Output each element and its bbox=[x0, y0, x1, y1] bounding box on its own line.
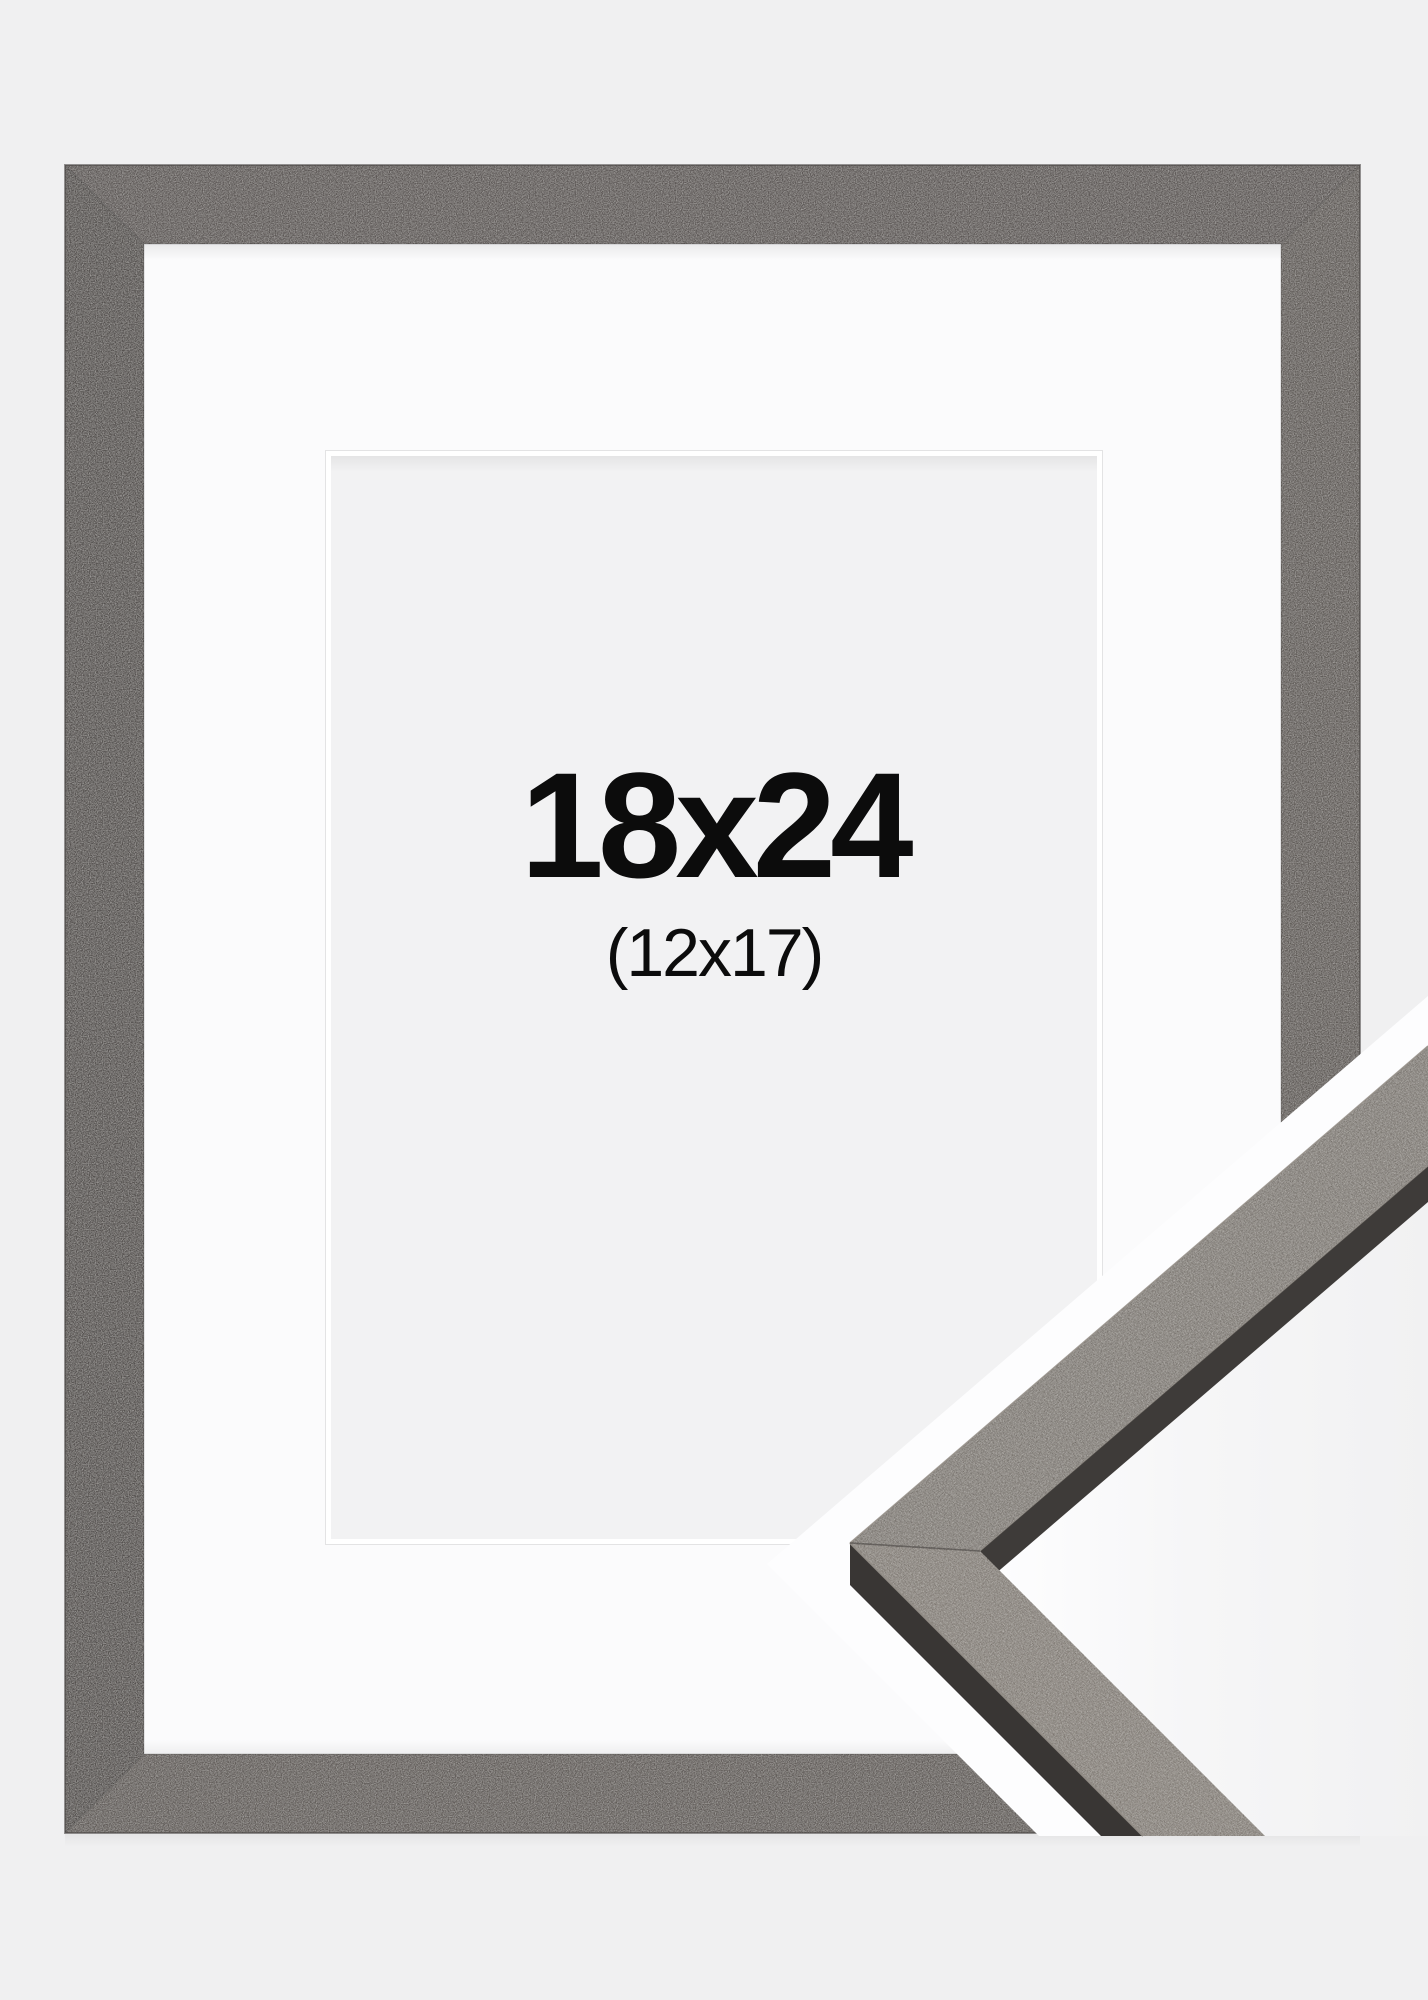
product-montage: 18x24 (12x17) bbox=[0, 0, 1428, 2000]
product-image-canvas: 18x24 (12x17) bbox=[0, 0, 1428, 2000]
mat-opening bbox=[331, 456, 1097, 1539]
inner-size-text: (12x17) bbox=[606, 915, 823, 991]
frame-left-bar bbox=[65, 165, 144, 1833]
mat-shadow-top bbox=[144, 244, 1281, 260]
size-text: 18x24 bbox=[520, 741, 913, 909]
opening-shadow-top bbox=[331, 456, 1097, 472]
frame-top-bar bbox=[65, 165, 1360, 244]
